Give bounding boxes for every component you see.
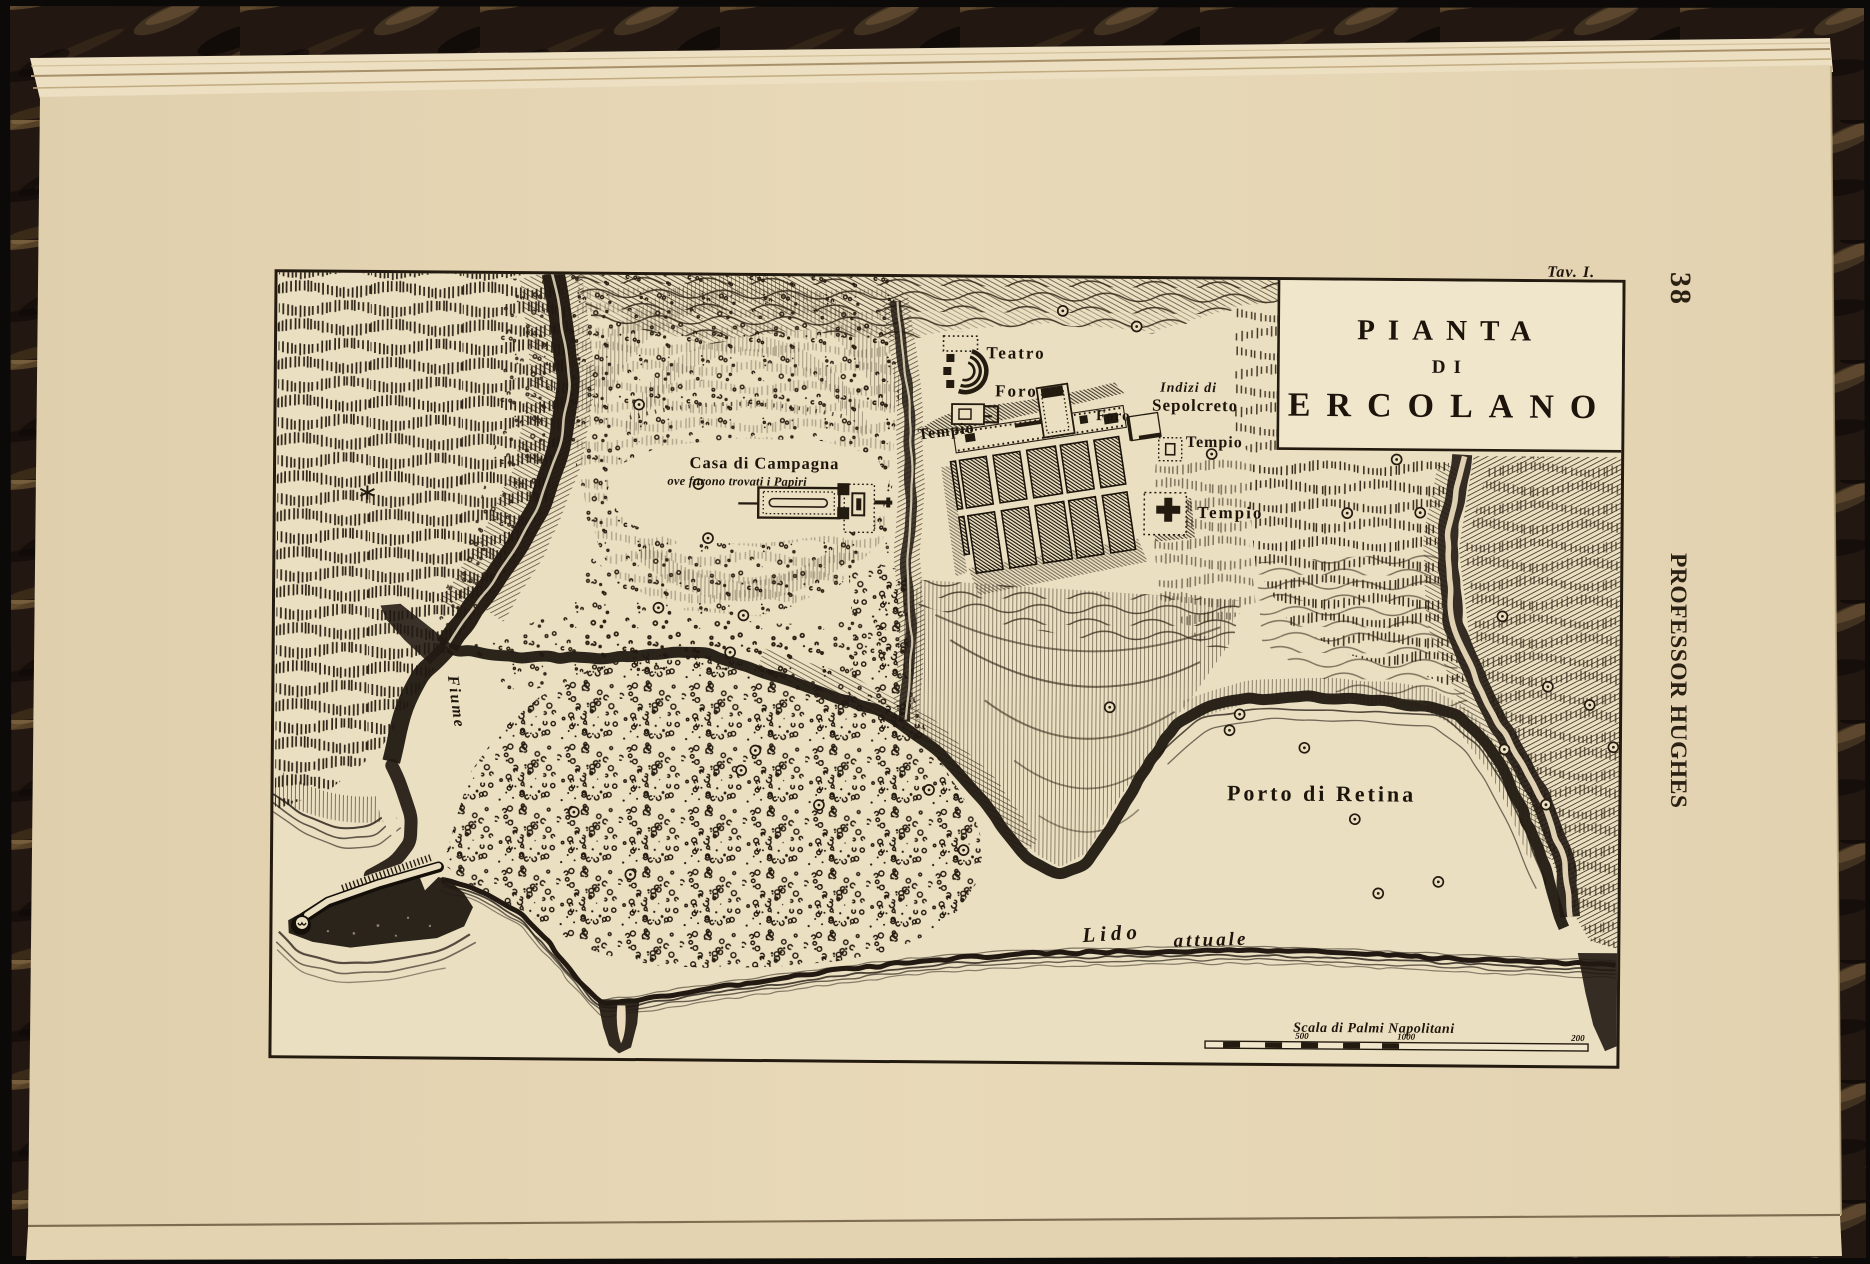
svg-text:Lido: Lido — [1081, 919, 1143, 947]
svg-text:Porto di Retina: Porto di Retina — [1227, 780, 1416, 806]
svg-text:Teatro: Teatro — [986, 343, 1045, 362]
svg-text:PROFESSOR HUGHES: PROFESSOR HUGHES — [1665, 553, 1691, 808]
svg-text:200: 200 — [1570, 1033, 1585, 1043]
svg-text:DI: DI — [1432, 357, 1469, 378]
svg-text:ERCOLANO: ERCOLANO — [1288, 387, 1613, 427]
svg-text:Tempio: Tempio — [1186, 434, 1243, 451]
svg-text:attuale: attuale — [1173, 929, 1248, 952]
svg-text:ove furono trovati i Papiri: ove furono trovati i Papiri — [667, 474, 807, 489]
svg-text:500: 500 — [1295, 1031, 1309, 1041]
svg-text:Scala di Palmi Napolitani: Scala di Palmi Napolitani — [1293, 1021, 1455, 1037]
svg-text:PIANTA: PIANTA — [1357, 314, 1544, 347]
svg-text:Casa di Campagna: Casa di Campagna — [690, 453, 840, 473]
svg-text:Tempio: Tempio — [1197, 503, 1263, 523]
svg-text:Sepolcreto: Sepolcreto — [1152, 396, 1238, 416]
svg-text:38: 38 — [1664, 272, 1697, 306]
svg-text:Foro: Foro — [995, 381, 1038, 400]
svg-text:Indizi di: Indizi di — [1159, 381, 1217, 396]
svg-text:Tav. I.: Tav. I. — [1547, 264, 1595, 281]
svg-text:1000: 1000 — [1397, 1032, 1416, 1042]
svg-text:Foro: Foro — [1096, 408, 1131, 424]
